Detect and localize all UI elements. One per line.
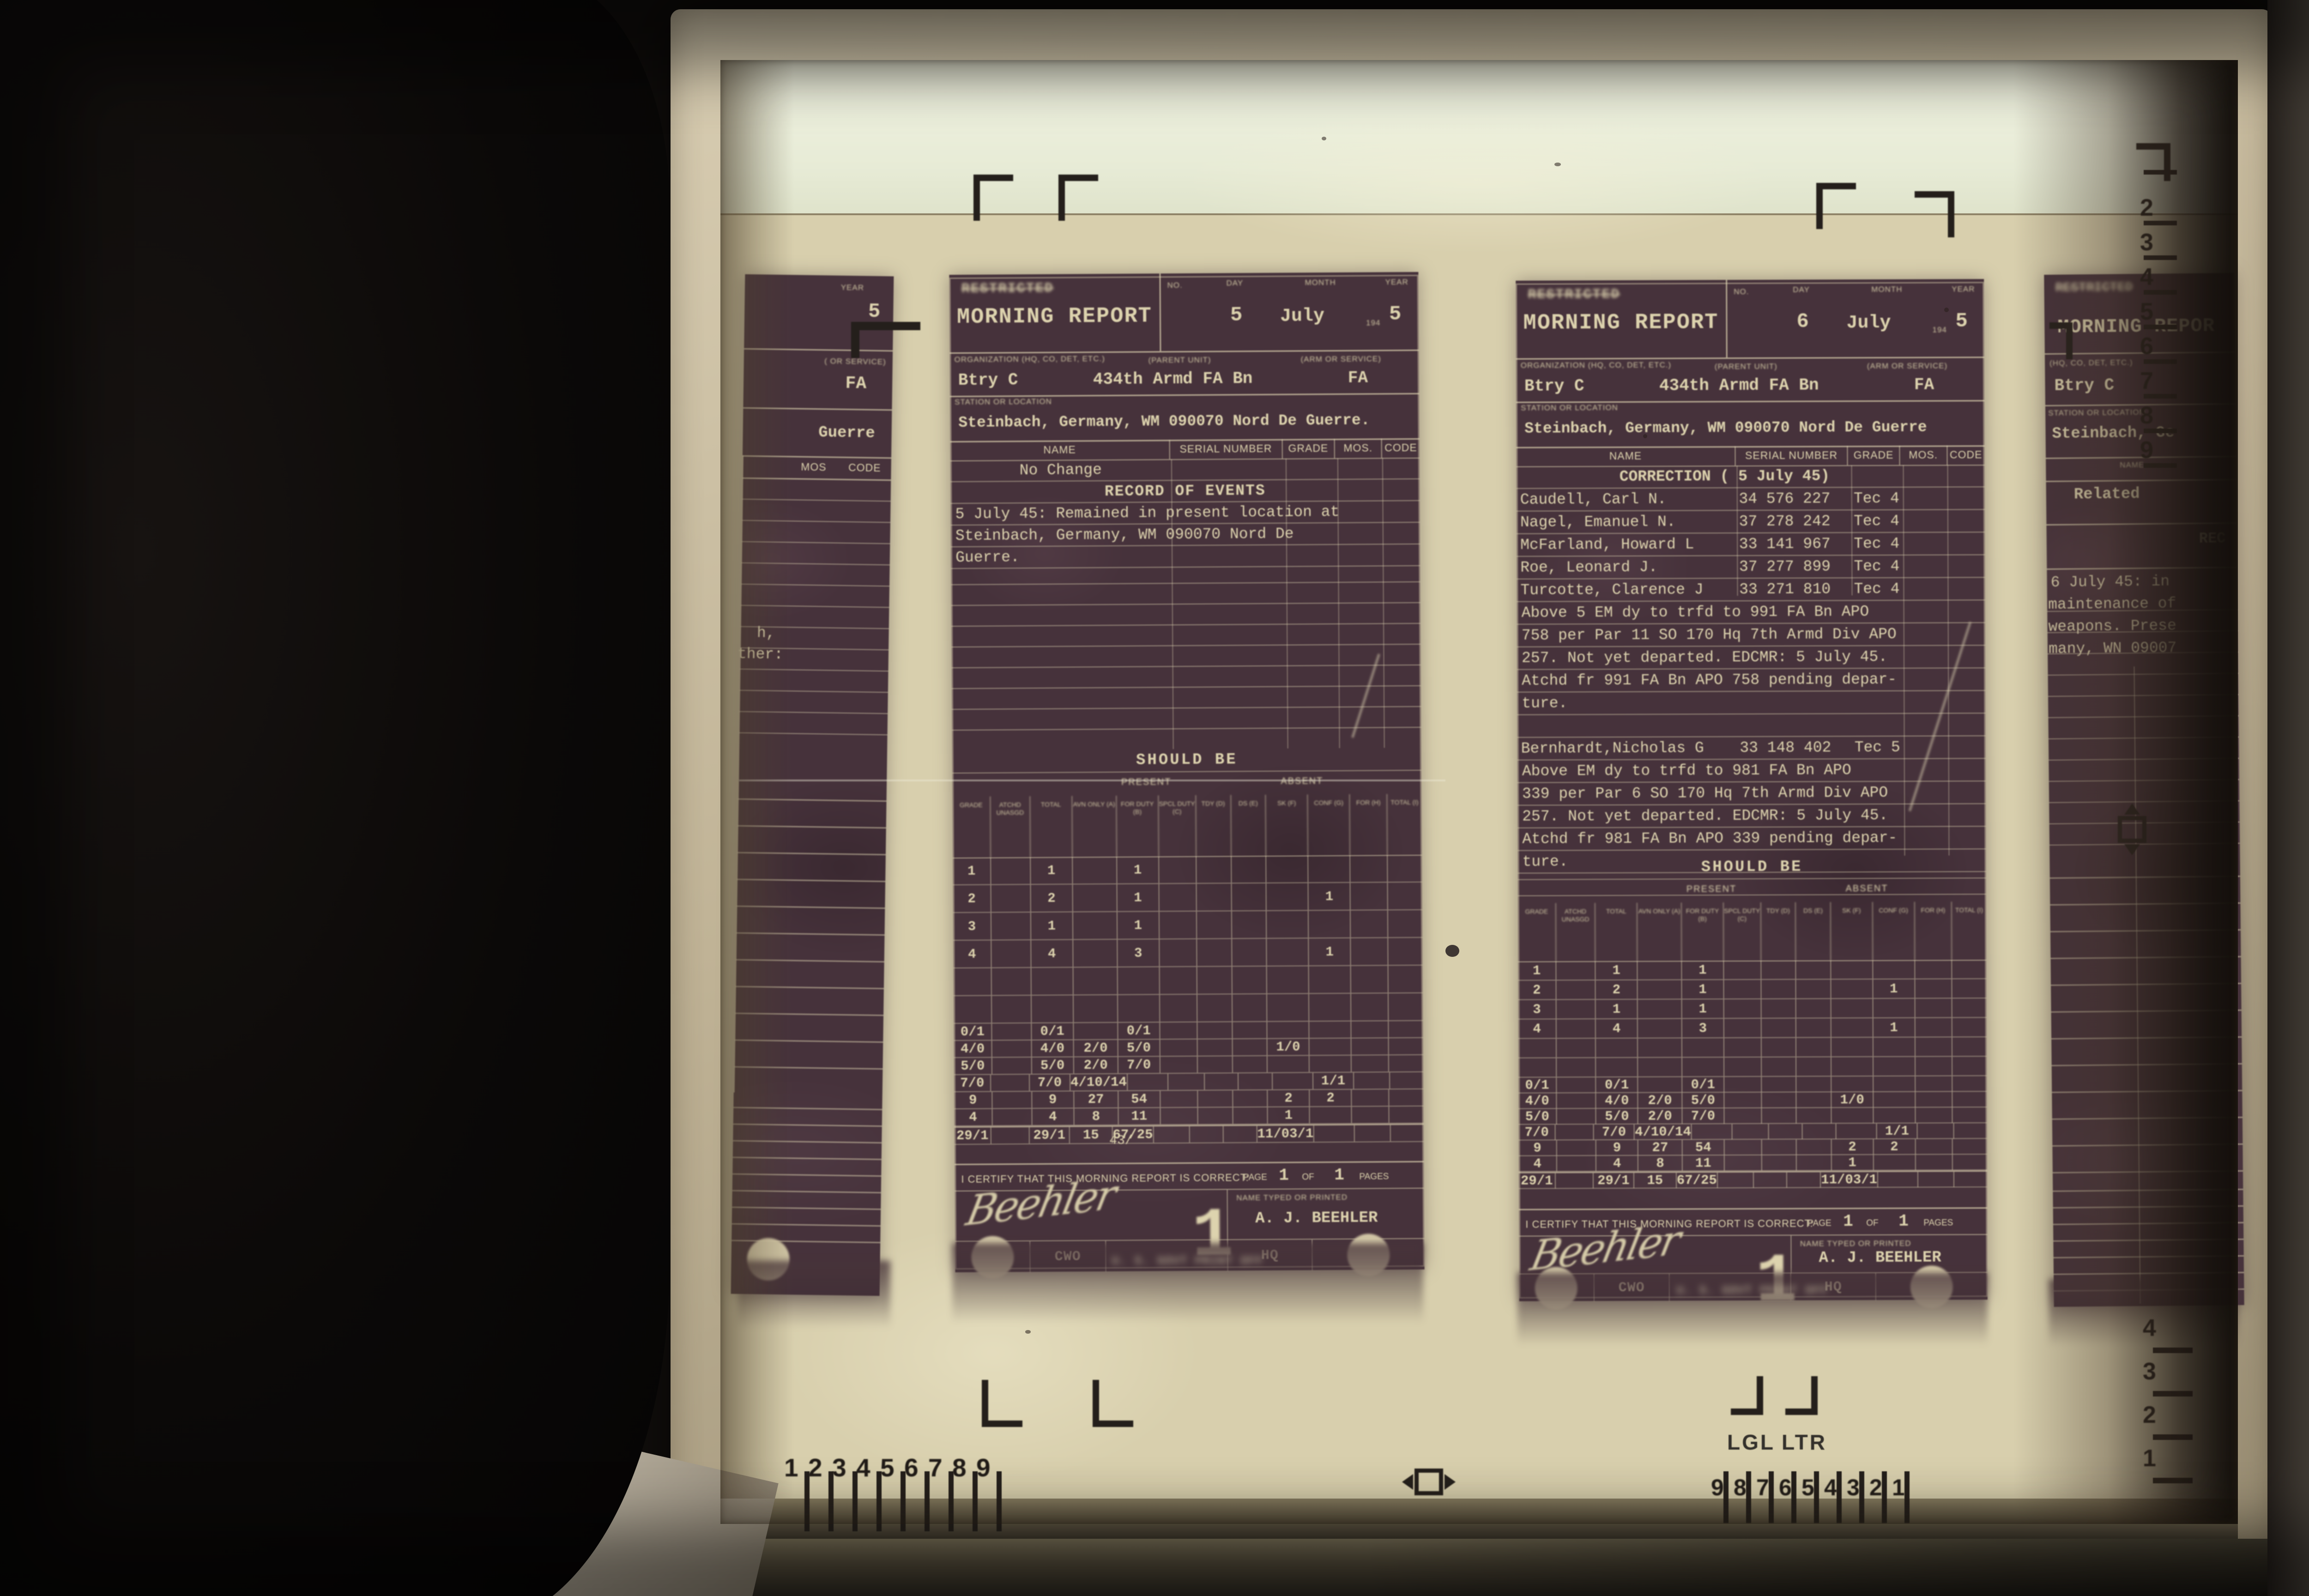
pages-number: 1 [1898, 1212, 1909, 1231]
col-code: CODE [1381, 438, 1420, 458]
soldier-row: Caudell, Carl N.34 576 227Tec 4 [1517, 487, 1985, 512]
stats-cell [1637, 1077, 1681, 1093]
stats-cell [1555, 961, 1595, 979]
ruler-number: 7 [1756, 1474, 1769, 1501]
machine-side-panel [2267, 0, 2309, 1596]
stats-cell: 15 [1633, 1173, 1676, 1188]
stats-cell: 5/0 [1117, 1040, 1159, 1056]
stats-cell [1267, 1022, 1309, 1038]
ruler-number: 3 [1847, 1474, 1860, 1501]
stats-cell: 1 [953, 858, 990, 884]
year-value: 5 [868, 300, 881, 323]
stats-cell [991, 940, 1030, 967]
stats-cell [1231, 883, 1266, 910]
stats-cell: 3 [953, 913, 991, 940]
stats-cell [1197, 1039, 1232, 1055]
soldier-name: Caudell, Carl N. [1520, 489, 1667, 511]
stats-cell [1189, 1126, 1222, 1143]
stats-cell [990, 857, 1030, 884]
signature-row: Beehler NAME TYPED OR PRINTED A. J. BEEH… [955, 1188, 1425, 1242]
ruler-number: 4 [856, 1453, 870, 1482]
org-label: ORGANIZATION (HQ, CO, DET, ETC.) [954, 354, 1105, 364]
stats-row: 2211 [953, 883, 1422, 913]
stats-cell: 67/25 [1676, 1173, 1717, 1188]
stats-cell [1313, 1125, 1354, 1142]
stats-cell: 5/0 [1596, 1109, 1638, 1124]
stats-cell [1732, 1124, 1768, 1139]
stats-cell [1267, 1056, 1309, 1072]
record-area: No Change RECORD OF EVENTS 5 July 45: Re… [950, 458, 1421, 750]
stats-column-label: SPCL DUTY (C) [1723, 902, 1760, 961]
stats-cell [991, 1040, 1031, 1057]
stats-cell [1952, 1018, 1987, 1036]
stats-cell [1351, 1038, 1388, 1054]
stats-cell: 9 [1031, 1092, 1073, 1108]
record-line: Atchd fr 991 FA Bn APO 758 pending depar… [1517, 668, 1985, 693]
stats-cell [1197, 1090, 1232, 1106]
stats-cell: 11 [1118, 1108, 1160, 1124]
stats-cell [1159, 912, 1196, 938]
stats-cell [1873, 1155, 1915, 1170]
stats-cell [1072, 857, 1116, 884]
stats-cell [991, 1058, 1031, 1074]
letter-size-label: LTR [1782, 1430, 1827, 1455]
ruler-tick [1723, 1471, 1729, 1523]
stats-cell [1691, 1124, 1732, 1139]
dust-speck [1025, 1330, 1031, 1334]
soldier-row: Turcotte, Clarence J33 271 810Tec 4 [1517, 578, 1985, 602]
org-label: ORGANIZATION (HQ, CO, DET, ETC.) [1521, 361, 1671, 370]
grade: Tec 4 [1854, 533, 1899, 555]
stats-column-label: DS (E) [1795, 902, 1830, 960]
stats-cell [1761, 1140, 1796, 1155]
stats-cell: 2 [953, 885, 990, 912]
stats-cell [1836, 1124, 1876, 1139]
stats-cell: 1 [1030, 857, 1072, 884]
stats-cell [1309, 1039, 1351, 1055]
legal-size-label: LGL [1727, 1430, 1775, 1455]
stats-cell: 4 [1031, 1109, 1073, 1125]
stats-column-label: AVN ONLY (A) [1637, 903, 1681, 961]
stats-column-label: FOR (H) [1349, 794, 1387, 855]
soldier-name: Bernhardt,Nicholas G [1521, 737, 1704, 759]
stats-cell [1272, 1073, 1312, 1089]
stats-cell [1873, 1092, 1915, 1107]
stats-cell: 1 [1595, 1000, 1637, 1018]
page-label: PAGE [1243, 1173, 1267, 1183]
stats-cell [1795, 1057, 1831, 1076]
stats-cell [1915, 1076, 1952, 1091]
stats-column-label: TDY (D) [1195, 795, 1231, 856]
stats-cell [1555, 1173, 1593, 1188]
record-line: 257. Not yet departed. EDCMR: 5 July 45. [1517, 804, 1986, 828]
record-line: Atchd fr 981 FA Bn APO 339 pending depar… [1517, 827, 1986, 851]
signer-name: A. J. BEEHLER [1819, 1249, 1941, 1267]
stats-cell [1595, 1058, 1637, 1076]
stats-cell: 1 [1308, 938, 1350, 966]
grade: Tec 4 [1854, 556, 1899, 577]
stats-column-label: ATCHD UNASGD [990, 796, 1030, 858]
stats-cell [1915, 1057, 1952, 1075]
stats-cell [1073, 1023, 1117, 1040]
stats-cell [991, 1109, 1031, 1125]
arm-label: (ARM OR SERVICE) [1300, 354, 1381, 364]
soldier-name: Roe, Leonard J. [1520, 556, 1657, 579]
stats-cell: 0/1 [1117, 1022, 1159, 1039]
stats-cell [1795, 1038, 1831, 1056]
name-typed-label: NAME TYPED OR PRINTED [1236, 1193, 1348, 1203]
stats-cell [1266, 994, 1308, 1021]
stats-cell: 2 [1595, 980, 1637, 999]
stats-cell: 0/1 [1681, 1077, 1723, 1092]
stats-row: 7/07/04/10/141/1 [954, 1072, 1423, 1092]
stats-cell: 1/0 [1831, 1092, 1873, 1107]
stats-cell [1796, 1155, 1831, 1170]
should-be-title: SHOULD BE [1518, 855, 1986, 880]
stats-column-label: FOR (H) [1914, 901, 1951, 960]
stats-cell [1637, 961, 1681, 979]
ruler-number: 7 [928, 1453, 943, 1482]
stats-cell [1831, 1076, 1873, 1092]
stats-cell [1801, 1124, 1835, 1139]
stats-cell [1595, 1039, 1637, 1057]
stats-cell [1953, 1172, 1987, 1187]
stats-cell [1266, 883, 1308, 910]
stats-cell [1761, 1093, 1796, 1108]
stats-cell [1196, 856, 1231, 883]
ruler-tick [1837, 1471, 1842, 1523]
stats-cell [1555, 980, 1595, 999]
stats-cell [1953, 1123, 1987, 1138]
stats-cell [1203, 1073, 1238, 1089]
stats-cell [991, 1092, 1031, 1108]
stats-row: 311 [1518, 998, 1987, 1020]
stats-table: 111221131144310/10/10/14/04/02/05/01/05/… [1518, 960, 1987, 1209]
form-header: RESTRICTED MORNING REPORT NO. DAY MONTH … [1516, 279, 1984, 360]
stats-column-labels: GRADEATCHD UNASGDTOTALAVN ONLY (A)FOR DU… [952, 794, 1422, 858]
stats-cell: 1 [1681, 961, 1723, 979]
stats-cell [1795, 999, 1831, 1017]
form-title: MORNING REPORT [1523, 310, 1718, 335]
record-text: Atchd fr 981 FA Bn APO 339 pending depar… [1517, 829, 1897, 848]
stats-cell [1796, 1108, 1831, 1123]
stats-cell: 5/0 [1031, 1058, 1073, 1074]
ruler-tick [1791, 1471, 1796, 1523]
stats-cell: 2 [1030, 885, 1072, 912]
col-name: NAME [1516, 446, 1735, 466]
record-text: 758 per Par 11 SO 170 Hq 7th Armd Div AP… [1517, 626, 1897, 644]
stats-cell [1388, 1089, 1423, 1106]
org-value: Btry C [958, 370, 1018, 390]
stats-column-label: SK (F) [1830, 902, 1872, 960]
stats-cell: 7/0 [1682, 1108, 1724, 1124]
registration-bracket [1093, 1380, 1133, 1427]
stats-cell [1831, 999, 1873, 1017]
page-number: 1 [1843, 1212, 1853, 1231]
stats-cell: 15 [1069, 1127, 1112, 1143]
stats-cell [1197, 1107, 1232, 1124]
stats-cell: 4 [953, 941, 991, 967]
ruler-tick [1882, 1471, 1887, 1523]
govt-print-footer: U. S. GOVT PRINT OFF [1112, 1255, 1263, 1268]
stats-cell: 1 [1030, 913, 1072, 940]
microfilm-reader-photo: YEAR 5 ( OR SERVICE) FA Guerre MOS CODE … [0, 0, 2309, 1596]
stats-cell [1556, 1156, 1596, 1171]
stats-cell [1952, 1057, 1987, 1075]
stats-cell: 1 [1681, 999, 1723, 1018]
stats-header: PRESENT ABSENT GRADEATCHD UNASGDTOTALAVN… [952, 770, 1422, 858]
stats-cell: 4 [1519, 1156, 1556, 1171]
stats-cell [1637, 1039, 1681, 1057]
ruler-tick [1904, 1471, 1910, 1523]
stats-cell [1952, 998, 1987, 1017]
stats-cell: 4/0 [954, 1041, 991, 1057]
record-text: 257. Not yet departed. EDCMR: 5 July 45. [1517, 648, 1887, 667]
col-mos: MOS. [1334, 438, 1381, 458]
stats-cell [1265, 855, 1307, 883]
pages-label: PAGES [1359, 1172, 1389, 1182]
stats-column-label: TOTAL (I) [1386, 794, 1422, 855]
photostat-smudge: U. S. GOVT PRINT OFF [1517, 1273, 1988, 1346]
stats-column-label: SPCL DUTY (C) [1158, 795, 1196, 856]
stats-cell [1952, 979, 1987, 997]
blank-row [1517, 713, 1985, 738]
stats-cell [1556, 1077, 1596, 1093]
stats-cell [1556, 1140, 1596, 1155]
signer-name: A. J. BEEHLER [1255, 1209, 1378, 1227]
blank-ruled-rows [951, 562, 1421, 750]
registration-bracket [851, 322, 920, 358]
stats-cell [1518, 1058, 1556, 1076]
col-code: CODE [1946, 445, 1985, 465]
film-carrier-arm [0, 0, 670, 1596]
code-column-label: CODE [848, 461, 881, 474]
serial-number: 37 277 899 [1739, 556, 1831, 578]
stats-cell [1952, 1155, 1987, 1170]
present-group-label: PRESENT [1121, 777, 1172, 788]
grade: Tec 4 [1854, 488, 1899, 509]
stats-cell: 4/0 [1518, 1093, 1556, 1108]
stats-cell [1231, 856, 1266, 883]
stats-cell [1873, 1038, 1915, 1056]
record-text: Atchd fr 991 FA Bn APO 758 pending depar… [1517, 671, 1897, 689]
stats-column-label: TOTAL [1595, 903, 1637, 961]
month-label: MONTH [1305, 278, 1336, 287]
stats-cell [1231, 939, 1266, 966]
stats-column-label: SK (F) [1265, 794, 1308, 856]
ruler-number: 5 [1801, 1474, 1814, 1501]
soldier-row: Roe, Leonard J.37 277 899Tec 4 [1517, 555, 1985, 580]
record-area: CORRECTION ( 5 July 45) Caudell, Carl N.… [1517, 465, 1986, 857]
screen-shadow-left [720, 60, 794, 1499]
ruler-number: 5 [880, 1453, 895, 1482]
stats-cell [1266, 966, 1308, 993]
stats-column-label: TOTAL (I) [1951, 901, 1986, 960]
year-label: YEAR [1385, 278, 1408, 287]
serial-number: 33 271 810 [1739, 578, 1831, 600]
stats-cell: 1 [1308, 883, 1350, 910]
stats-cell: 4 [1596, 1156, 1638, 1171]
left-arrow-icon [1402, 1474, 1413, 1490]
stats-cell [1117, 967, 1159, 994]
stats-cell: 2 [1831, 1139, 1873, 1155]
stats-cell: 29/1 [1028, 1127, 1069, 1144]
stats-cell [1723, 1077, 1761, 1092]
stats-cell [1266, 911, 1308, 938]
stats-cell: 1 [1681, 980, 1723, 998]
station-label: STATION OR LOCATION [1521, 403, 1618, 413]
stats-cell: 8 [1073, 1108, 1118, 1125]
stats-cell [1353, 1072, 1390, 1088]
stats-cell [1555, 1019, 1595, 1038]
stats-row: 7/07/04/10/141/1 [1519, 1123, 1987, 1141]
arm-value: FA [1914, 375, 1934, 394]
stats-cell [1796, 1092, 1831, 1107]
stats-cell [1872, 960, 1914, 979]
stats-cell [1072, 912, 1117, 939]
stats-cell [1222, 1126, 1256, 1142]
organization-row: ORGANIZATION (HQ, CO, DET, ETC.) (PARENT… [1516, 357, 1984, 403]
stats-cell [1830, 979, 1872, 998]
stats-cell [1072, 940, 1117, 967]
center-square-icon [1414, 1469, 1443, 1495]
stats-cell: 1/1 [1876, 1124, 1917, 1139]
stats-cell [1917, 1172, 1953, 1187]
stats-row: 4431 [953, 938, 1422, 968]
stats-row: 311 [953, 910, 1422, 941]
stats-cell: 2 [1873, 1139, 1915, 1155]
report-year: 5 [1955, 309, 1968, 332]
stats-cell: 9 [1519, 1140, 1556, 1155]
stats-cell: 29/1 [1519, 1173, 1555, 1188]
stats-cell [1873, 1108, 1915, 1123]
correction-row: CORRECTION ( 5 July 45) [1517, 465, 1985, 489]
arm-value: FA [1348, 369, 1368, 387]
stats-cell [1556, 1058, 1596, 1076]
record-line: 758 per Par 11 SO 170 Hq 7th Armd Div AP… [1517, 623, 1985, 647]
dust-speck [1322, 137, 1326, 140]
stats-column-label: DS (E) [1230, 795, 1266, 856]
signature-row: Beehler NAME TYPED OR PRINTED A. J. BEEH… [1519, 1234, 1987, 1275]
soldier-row: Bernhardt,Nicholas G33 148 402Tec 5 [1517, 736, 1986, 761]
stats-cell [1159, 1022, 1197, 1039]
stats-cell [1796, 1139, 1831, 1155]
stats-column-label: CONF (G) [1872, 902, 1914, 960]
stats-column-label: ATCHD UNASGD [1555, 903, 1595, 961]
stats-row: 29/129/11567/2511/03/1 [1519, 1170, 1987, 1189]
stats-cell [1232, 1022, 1267, 1038]
stats-cell [1388, 1038, 1423, 1054]
stats-cell: 3 [1518, 1000, 1556, 1018]
stats-cell [1350, 938, 1388, 965]
ruler-number: 6 [1779, 1474, 1792, 1501]
stats-cell [1637, 1058, 1681, 1076]
stats-cell [1232, 1056, 1267, 1072]
stats-cell [1795, 1018, 1831, 1037]
stats-cell [1761, 1155, 1796, 1171]
stats-cell [1349, 855, 1387, 882]
stats-cell [1555, 1124, 1593, 1140]
stats-cell: 11/03/1 [1256, 1125, 1313, 1142]
stats-cell [1307, 855, 1349, 883]
stats-cell [1232, 1039, 1267, 1055]
stats-cell [1388, 966, 1423, 992]
ruler-number: 4 [1824, 1474, 1837, 1501]
stats-cell [1681, 1038, 1723, 1057]
stats-cell [1917, 1123, 1953, 1138]
stats-cell: 54 [1682, 1140, 1724, 1155]
stats-cell [1872, 999, 1914, 1017]
stats-cell [1795, 960, 1831, 979]
stats-cell [1389, 1072, 1423, 1088]
stats-cell [1717, 1173, 1753, 1188]
stats-cell [1914, 1037, 1952, 1056]
absent-group-label: ABSENT [1846, 883, 1888, 894]
film-center-mark-bottom [1402, 1467, 1456, 1497]
stats-cell [1873, 1076, 1915, 1092]
stats-row [954, 966, 1423, 996]
stats-cell [1167, 1074, 1204, 1090]
ruler-number: 9 [976, 1453, 991, 1482]
stats-cell: 3 [1117, 939, 1159, 967]
stats-cell [1761, 1077, 1796, 1092]
stats-cell [1196, 911, 1231, 938]
registration-bracket [973, 175, 1013, 221]
stats-cell [1831, 1018, 1873, 1037]
stats-cell [1308, 994, 1350, 1021]
stats-row: 111 [1518, 960, 1986, 981]
ruler-tick [1814, 1471, 1819, 1523]
parent-unit-label: (PARENT UNIT) [1148, 356, 1211, 365]
stats-cell: 1 [1116, 884, 1158, 911]
stats-row: 4/04/02/05/01/0 [1518, 1092, 1987, 1109]
stats-cell [1952, 960, 1987, 978]
year-label: YEAR [841, 283, 864, 293]
stats-cell [1196, 883, 1231, 910]
col-serial: SERIAL NUMBER [1169, 439, 1281, 459]
col-mos: MOS. [1899, 446, 1946, 465]
stats-cell: 2 [1518, 980, 1555, 999]
stats-cell [1159, 967, 1196, 994]
stats-cell: 2/0 [1638, 1109, 1682, 1124]
stats-cell [1196, 967, 1231, 993]
serial-number: 33 141 967 [1739, 533, 1831, 555]
ruler-number: 6 [904, 1453, 919, 1482]
stats-cell: 4 [1518, 1019, 1556, 1038]
stats-cell [1831, 1108, 1873, 1123]
col-grade: GRADE [1281, 439, 1334, 459]
stats-cell [1117, 995, 1159, 1022]
stats-cell [1555, 1000, 1595, 1018]
stats-cell: 0/1 [1596, 1077, 1638, 1093]
stats-cell: 11/03/1 [1820, 1172, 1877, 1187]
stats-cell [990, 885, 1030, 912]
stats-cell [1723, 1038, 1761, 1057]
stats-cell [1197, 994, 1232, 1021]
stats-cell [1351, 1089, 1389, 1106]
stats-cell [1153, 1126, 1189, 1143]
stats-cell [1723, 1019, 1761, 1037]
stats-cell [1158, 884, 1196, 911]
station-row: STATION OR LOCATION Steinbach, Germany, … [1516, 400, 1984, 448]
year-prefix: 194 [1932, 326, 1946, 335]
soldier-row: McFarland, Howard L33 141 967Tec 4 [1517, 532, 1985, 557]
stats-cell: 5/0 [1518, 1109, 1556, 1124]
stats-cell: 1 [1595, 961, 1637, 979]
divider [1159, 273, 1161, 351]
stats-cell [1768, 1124, 1801, 1139]
stats-cell: 7/0 [954, 1075, 991, 1091]
